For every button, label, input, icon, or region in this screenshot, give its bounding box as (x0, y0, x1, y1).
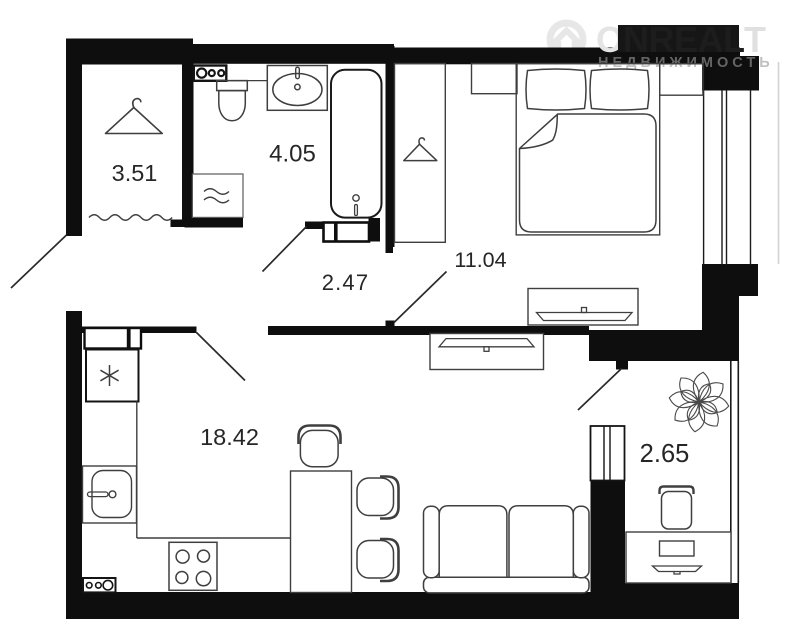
svg-text:T: T (744, 19, 766, 60)
svg-text:4.05: 4.05 (269, 141, 316, 168)
svg-text:18.42: 18.42 (200, 424, 259, 450)
svg-text:3.51: 3.51 (112, 160, 158, 186)
svg-text:2.65: 2.65 (640, 440, 690, 468)
svg-text:2.47: 2.47 (322, 270, 370, 295)
svg-text:NREAL: NREAL (623, 19, 745, 60)
svg-text:11.04: 11.04 (454, 248, 506, 272)
